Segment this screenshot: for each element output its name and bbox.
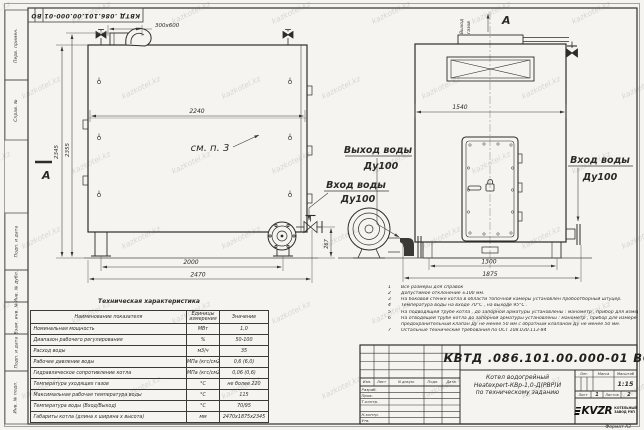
- notes-block: 1Все размеры для справок 2Допустимое отк…: [386, 285, 638, 334]
- tech-cell-name: Габариты котла (длина х ширина х высота): [31, 412, 187, 423]
- margin-field-vzam-inv: Взам. инв. №: [5, 302, 28, 334]
- tech-cell-value: 50-100: [220, 335, 269, 346]
- dim-1875-label: 1875: [482, 271, 497, 278]
- water-out-dn-label: Ду100: [363, 161, 399, 172]
- margin-label: Подп. и дата: [14, 226, 19, 258]
- tech-header-name: Наименование показателя: [31, 311, 187, 324]
- leader-lines: [35, 14, 633, 237]
- tech-cell-name: Температура уходящих газов: [31, 379, 187, 390]
- col-list: Лист: [374, 378, 389, 386]
- tech-cell-value: 1,0: [220, 324, 269, 335]
- scale-label: Масштаб: [614, 370, 637, 377]
- col-podp: Подп.: [424, 378, 442, 386]
- dim-flue-label: 300х600: [155, 23, 180, 29]
- note-number: 3: [386, 297, 401, 302]
- drawing-sheet: kazkotel.kzkazkotel.kzkazkotel.kzkazkote…: [0, 0, 644, 430]
- note-number: 1: [386, 285, 401, 290]
- tech-cell-unit: МПа (кгс/см2): [187, 368, 220, 379]
- tech-cell-unit: %: [187, 335, 220, 346]
- extension-lines: [56, 25, 581, 283]
- tech-cell-unit: °С: [187, 379, 220, 390]
- tech-cell-name: Температура воды (Вход/Выход): [31, 401, 187, 412]
- company-line-2: ЗАВОД РЭП: [614, 411, 637, 415]
- note-text: Все размеры для справок: [401, 285, 463, 290]
- tech-cell-name: Диапазон рабочего регулирования: [31, 335, 187, 346]
- tech-cell-name: Гидравлическое сопротивление котла: [31, 368, 187, 379]
- dim-1540-label: 1540: [452, 104, 467, 111]
- note-text: Остальные технические требования по ОСТ …: [401, 328, 546, 333]
- water-in-right-label: Вход воды: [570, 155, 630, 166]
- title-block-product-name: Котел водогрейный Heatexpert-КВр-1,0-Д(Р…: [460, 374, 575, 397]
- section-a-label: А: [41, 169, 51, 182]
- gas-out-label-2: газов: [467, 21, 472, 34]
- tech-cell-value: 70/95: [220, 401, 269, 412]
- boiler-front-view: [338, 12, 592, 268]
- col-izm: Изм.: [360, 378, 374, 386]
- note-line: 7Остальные технические требования по ОСТ…: [386, 328, 638, 334]
- furnace-door: [462, 137, 522, 241]
- margin-label: Взам. инв. №: [14, 302, 19, 334]
- tech-cell-unit: МПа (кгс/см2): [187, 357, 220, 368]
- note-text: На подводящей трубе котла , до запорной …: [401, 310, 638, 315]
- tech-table: Наименование показателя Единицы измерени…: [30, 310, 269, 423]
- sheet-label: Лист: [575, 391, 591, 398]
- sheets-value: 2: [621, 391, 637, 398]
- note-number: 7: [386, 328, 401, 333]
- note-number: 4: [386, 303, 401, 308]
- tech-table-title: Техническая характеристика: [30, 298, 268, 305]
- logo-bars-icon: [574, 407, 581, 416]
- tech-cell-name: Рабочее давление воды: [31, 357, 187, 368]
- blower-fan: [348, 208, 421, 258]
- dim-1300-label: 1300: [481, 259, 496, 266]
- note-text: предохранительный клапан Ду не менее 50 …: [401, 322, 620, 327]
- tech-cell-unit: м3/ч: [187, 346, 220, 357]
- margin-field-perv-primen: Перв. примен.: [5, 10, 28, 80]
- skid-base: [423, 242, 561, 258]
- tech-cell-value: 0,06 (0,6): [220, 368, 269, 379]
- col-ndoc: N докум.: [389, 378, 424, 386]
- tech-header-unit: Единицы измерения: [187, 311, 220, 324]
- margin-label: Инв. № дубл.: [14, 270, 19, 302]
- margin-label: Справ. №: [14, 99, 19, 122]
- row-nkontr: Н.контр.: [360, 411, 391, 417]
- tech-cell-value: 2470х1875х2345: [220, 412, 269, 423]
- tech-cell-unit: °С: [187, 401, 220, 412]
- top-stamp: КВТД .086.101.00.000-01 ВО: [28, 8, 143, 22]
- company-name: КОТЕЛЬНЫЙ ЗАВОД РЭП: [614, 407, 637, 414]
- note-text: Температура воды на входе 70°С , на выхо…: [401, 303, 528, 308]
- tech-cell-name: Расход воды: [31, 346, 187, 357]
- tech-cell-value: 0,6 (6,0): [220, 357, 269, 368]
- col-data: Дата: [442, 378, 460, 386]
- tech-cell-unit: МВт: [187, 324, 220, 335]
- margin-field-podp-data-2: Подп. и дата: [5, 334, 28, 371]
- tech-cell-unit: мм: [187, 412, 220, 423]
- dim-267-label: 267: [324, 238, 330, 248]
- dim-2470-label: 2470: [190, 272, 205, 279]
- sheet-value: 1: [591, 391, 603, 398]
- tech-cell-value: не более 220: [220, 379, 269, 390]
- lit-label: Лит.: [575, 370, 593, 377]
- note-text: На боковой стенке котла в области топочн…: [401, 297, 622, 302]
- mass-label: Масса: [593, 370, 614, 377]
- margin-field-inv-dubl: Инв. № дубл.: [5, 270, 28, 302]
- sheets-label: Листов: [603, 391, 621, 398]
- drain-tap: [567, 42, 578, 58]
- product-line-2: Heatexpert-КВр-1,0-Д(РВР)И: [460, 382, 575, 390]
- margin-label: Инв. № подл.: [14, 381, 19, 413]
- right-inlet-flange: [566, 224, 580, 245]
- dim-2355-label: 2355: [65, 143, 71, 157]
- water-in-right-dn-label: Ду100: [582, 172, 618, 183]
- row-utv: Утв.: [360, 418, 391, 424]
- note-number: 6: [386, 316, 401, 321]
- margin-label: Перв. примен.: [14, 28, 19, 63]
- dim-2000-label: 2000: [183, 259, 198, 266]
- margin-label: Подп. и дата: [14, 337, 19, 369]
- dim-2240-label: 2240: [189, 108, 204, 115]
- tech-cell-unit: °С: [187, 390, 220, 401]
- row-prov: Пров.: [360, 392, 391, 398]
- ref-note-label: см. п. 3: [191, 143, 230, 154]
- format-label: Формат А3: [555, 425, 631, 430]
- product-line-3: по техническому заданию: [460, 389, 575, 397]
- tech-header-value: Значение: [220, 311, 269, 324]
- note-number: 5: [386, 310, 401, 315]
- drawing-texts: 300х600 2240 2345 2355 см. п. 3 А 2000 2…: [41, 14, 630, 279]
- pump-flange: [268, 222, 296, 250]
- gas-out-label-1: Выход: [459, 19, 465, 34]
- margin-field-podp-data-1: Подп. и дата: [5, 213, 28, 270]
- tech-cell-name: Максимальная рабочая температура воды: [31, 390, 187, 401]
- tech-cell-value: 35: [220, 346, 269, 357]
- water-in-left-label: Вход воды: [326, 180, 386, 191]
- water-in-left-dn-label: Ду100: [340, 194, 376, 205]
- title-block-doc-number: КВТД .086.101.00.000-01 ВО: [460, 345, 637, 370]
- hatch: [447, 57, 534, 81]
- top-stamp-doc-number: КВТД .086.101.00.000-01 ВО: [31, 12, 140, 19]
- scale-value: 1:15: [614, 377, 637, 391]
- margin-field-inv-podl: Инв. № подл.: [5, 371, 28, 424]
- company-logo: KVZR КОТЕЛЬНЫЙ ЗАВОД РЭП: [575, 398, 637, 424]
- note-text: Допустимое отклонение ±100 мм.: [401, 291, 484, 296]
- tech-cell-name: Номинальная мощность: [31, 324, 187, 335]
- note-number: 2: [386, 291, 401, 296]
- row-tkontr: Т.контр.: [360, 399, 391, 405]
- note-text: На отводящей трубе котла до запорной арм…: [401, 316, 638, 321]
- margin-field-sprav-no: Справ. №: [5, 80, 28, 140]
- dim-2345-label: 2345: [54, 145, 60, 159]
- tech-cell-value: 115: [220, 390, 269, 401]
- product-line-1: Котел водогрейный: [460, 374, 575, 382]
- water-out-label: Выход воды: [344, 145, 413, 156]
- logo-text: KVZR: [582, 405, 613, 417]
- view-a-label: А: [501, 14, 511, 27]
